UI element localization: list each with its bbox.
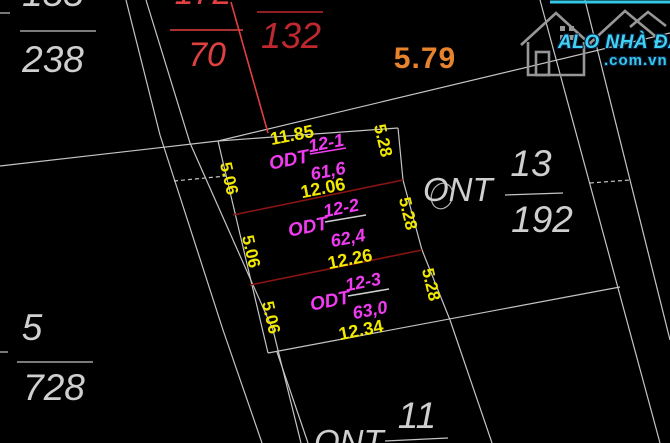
parcel-ont11-numerator: 11 bbox=[388, 396, 446, 437]
boundary-west bbox=[0, 141, 218, 166]
brand-wordmark: ALO NHÀ ĐẤT bbox=[558, 32, 670, 54]
fraction-bar-13-192 bbox=[505, 193, 563, 195]
parcel-5-numerator: 5 bbox=[12, 308, 52, 349]
parcel-201-label: 201 bbox=[396, 0, 466, 7]
ont11-west-line bbox=[277, 352, 308, 443]
cadastral-map-canvas: 155 238 172 70 132 201 5.79 ONT 13 192 5… bbox=[0, 0, 670, 443]
dashed-tie-right bbox=[590, 180, 630, 183]
parcel-5-denominator: 728 bbox=[14, 368, 94, 409]
frontage-dimension: 5.79 bbox=[388, 42, 462, 75]
parcel-172-denominator: 70 bbox=[178, 37, 236, 74]
ont11-east-line bbox=[450, 320, 492, 443]
parcel-155-numerator: 155 bbox=[18, 0, 88, 15]
brand-domain: .com.vn bbox=[604, 52, 668, 69]
parcel-ont13-denominator: 192 bbox=[502, 200, 582, 241]
fraction-bar-11 bbox=[385, 438, 448, 441]
parcel-ont13-numerator: 13 bbox=[502, 144, 560, 185]
parcel-155-denominator: 238 bbox=[16, 40, 90, 81]
parcel-ont13-use: ONT bbox=[423, 172, 493, 208]
parcel-132-denominator: 132 bbox=[254, 16, 328, 56]
parcel-172-numerator: 172 bbox=[170, 0, 236, 12]
parcel-ont11-use: ONT bbox=[314, 424, 384, 443]
